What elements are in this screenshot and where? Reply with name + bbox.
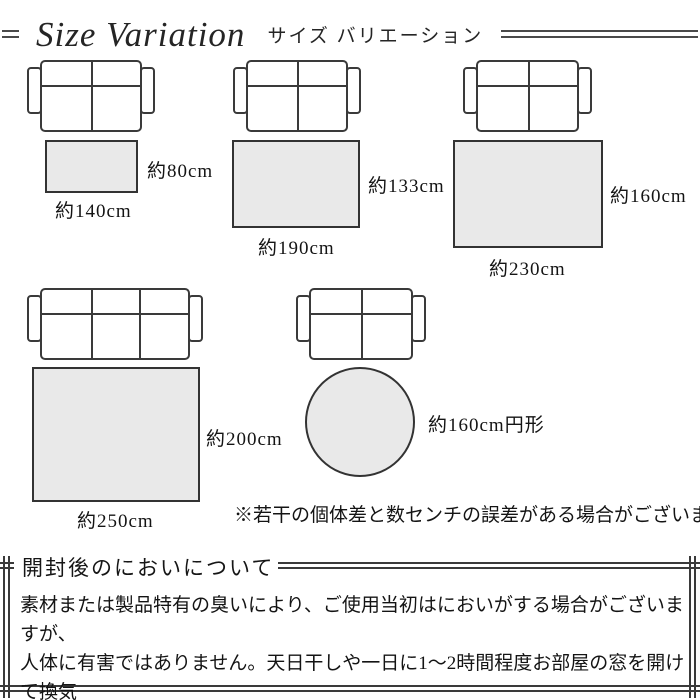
info-box-body: 素材または製品特有の臭いにより、ご使用当初はにおいがする場合がございますが、 人… (20, 591, 692, 700)
sofa-seat-cushions (478, 87, 577, 130)
rug-depth-label: 約200cm (206, 424, 283, 451)
info-box-line: 人体に有害ではありません。天日干しや一日に1〜2時間程度お部屋の窓を開けて換気 (20, 649, 692, 700)
info-box-border-left (3, 556, 10, 698)
sofa-back-cushions (311, 290, 411, 315)
rug-depth-label: 約133cm (368, 171, 445, 198)
info-box-line: 素材または製品特有の臭いにより、ご使用当初はにおいがする場合がございますが、 (20, 591, 692, 649)
rug-rectangle (32, 367, 200, 502)
sofa-seat-cushions (311, 315, 411, 358)
info-box-border-top-right (253, 562, 700, 569)
sofa-top-view-icon (27, 60, 155, 132)
sofa-seat-cushions (42, 87, 140, 130)
sofa-seat-cushions (42, 315, 188, 358)
rug-width-label: 約190cm (258, 233, 335, 260)
rug-rectangle (45, 140, 138, 193)
sofa-seat-cushions (248, 87, 346, 130)
rug-width-label: 約140cm (55, 196, 132, 223)
tolerance-note: ※若干の個体差と数センチの誤差がある場合がございます。 (234, 500, 700, 527)
header-right-rule (501, 30, 698, 38)
sofa-back-cushions (42, 62, 140, 87)
rug-size-label: 約160cm円形 (428, 410, 545, 437)
sofa-body (40, 60, 142, 132)
size-variation-infographic: Size Variation サイズ バリエーション 約80cm 約140cm … (0, 0, 700, 700)
sofa-back-cushions (42, 290, 188, 315)
sofa-top-view-icon (233, 60, 361, 132)
rug-width-label: 約230cm (489, 254, 566, 281)
rug-depth-label: 約160cm (610, 181, 687, 208)
rug-width-label: 約250cm (77, 506, 154, 533)
rug-rectangle (453, 140, 603, 248)
sofa-armrest-right (188, 295, 203, 342)
sofa-top-view-icon (296, 288, 426, 360)
sofa-top-view-icon (463, 60, 592, 132)
sofa-back-cushions (248, 62, 346, 87)
rug-rectangle (232, 140, 360, 228)
info-box-heading: 開封後のにおいについて (18, 552, 278, 582)
sofa-armrest-right (346, 67, 361, 114)
header: Size Variation サイズ バリエーション (0, 14, 700, 54)
sofa-body (309, 288, 413, 360)
sofa-armrest-right (140, 67, 155, 114)
page-title-japanese: サイズ バリエーション (267, 21, 483, 48)
sofa-body (40, 288, 190, 360)
page-title: Size Variation (36, 17, 245, 52)
sofa-body (476, 60, 579, 132)
sofa-body (246, 60, 348, 132)
sofa-top-view-icon (27, 288, 203, 360)
sofa-back-cushions (478, 62, 577, 87)
sofa-armrest-right (411, 295, 426, 342)
rug-circle (305, 367, 415, 477)
sofa-armrest-right (577, 67, 592, 114)
rug-depth-label: 約80cm (147, 156, 213, 183)
header-left-rule (2, 30, 19, 38)
info-box-border-top-left (0, 562, 14, 569)
